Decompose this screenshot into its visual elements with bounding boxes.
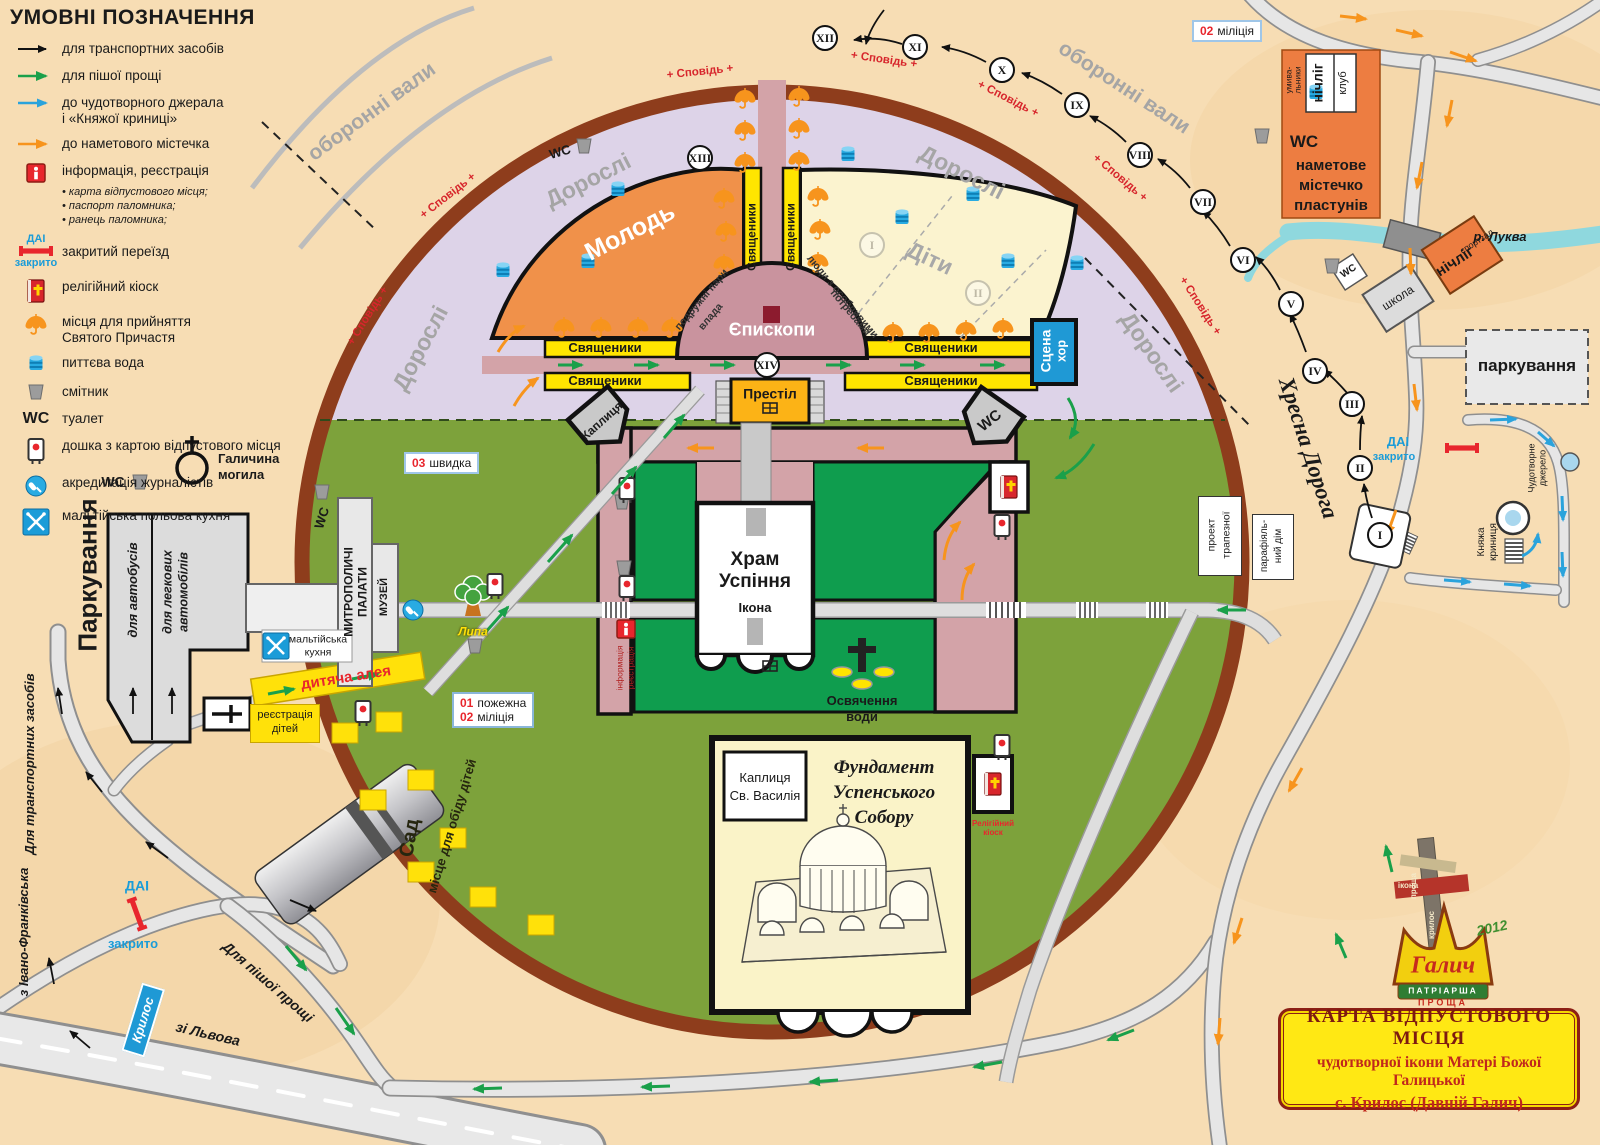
religious-kiosk-icon	[985, 773, 1001, 795]
maltese-kitchen-label: мальтійська	[289, 634, 347, 645]
legend-item-label: питтєва вода	[62, 354, 144, 371]
info-registration-label: інформація	[616, 646, 625, 691]
wc-label: WC	[101, 475, 124, 490]
station-12: XII	[812, 25, 838, 51]
dai-closed-icon: ДАІзакрито	[10, 234, 62, 269]
legend-subitem: • ранець паломника;	[62, 214, 310, 228]
fire-police-box: 01пожежна 02міліція	[452, 692, 534, 728]
legend-subitem: • карта відпустового місця;	[62, 186, 310, 200]
wc-label: WC	[1290, 133, 1318, 151]
parish-house-label: ний дім	[1274, 529, 1285, 563]
miraculous-spring-icon	[1561, 453, 1579, 471]
museum-label: МУЗЕЙ	[379, 578, 391, 616]
station-11: XI	[902, 34, 928, 60]
water-blessing-label: Освячення	[827, 694, 898, 708]
priests-strip: Священики	[568, 374, 641, 388]
religious-kiosk-icon	[10, 278, 62, 304]
dai-label: ДАІ	[125, 879, 149, 894]
parking-right-label: паркування	[1478, 357, 1576, 375]
zone-bishops: Єпископи	[729, 321, 815, 340]
map-title-plaque: КАРТА ВІДПУСТОВОГО МІСЦЯ чудотворної іко…	[1278, 1008, 1580, 1110]
stage-label: Сцена	[1039, 330, 1054, 373]
priests-strip: Священики	[904, 374, 977, 388]
refectory-label: проект	[1206, 519, 1217, 552]
palace-label: ПАЛАТИ	[357, 567, 370, 617]
legend-item-label: до чудотворного джерала	[62, 95, 223, 110]
press-icon	[403, 600, 423, 620]
station-10: X	[989, 57, 1015, 83]
children-registration-box: реєстраціядітей	[250, 704, 320, 743]
transport-road-label: Для транспортних засобів	[23, 673, 37, 854]
ivano-frankivsk-label: з Івано-Франківська	[17, 868, 31, 997]
linden-label: Липа	[458, 626, 488, 639]
station-2-faded: II	[965, 280, 991, 306]
legend-item-label: акредитація журналістів	[62, 474, 213, 491]
legend-item-label: закритий переїзд	[62, 234, 169, 260]
blue-arrow-icon	[10, 94, 62, 112]
legend-item-label: і «Княжої криниці»	[62, 111, 177, 126]
dai-label: ДАІ	[1387, 435, 1409, 449]
legend-item-label: релігійний кіоск	[62, 278, 158, 295]
trash-icon	[10, 383, 62, 401]
maltese-kitchen-label: кухня	[305, 647, 332, 658]
station-8: VIII	[1127, 142, 1153, 168]
palace-label: МИТРОПОЛИЧІ	[343, 547, 356, 637]
logo-halych: Галич	[1411, 953, 1475, 978]
kiosk-label: кіоск	[983, 829, 1002, 837]
map-board-icon	[10, 437, 62, 465]
icon-label: Ікона	[739, 601, 772, 615]
logo-cross-word: ікона	[1398, 882, 1418, 890]
spring-label: джерело	[1538, 450, 1547, 486]
priests-strip: Священики	[568, 341, 641, 355]
map-title: КАРТА ВІДПУСТОВОГО МІСЦЯ	[1281, 1006, 1577, 1050]
station-4: IV	[1302, 358, 1328, 384]
foundation-label: Успенського	[833, 783, 935, 803]
orange-arrow-icon	[10, 135, 62, 153]
dai-closed-label: закрито	[1373, 452, 1415, 464]
priests-strip: Священики	[746, 203, 759, 271]
parking-label: Паркування	[74, 498, 101, 651]
station-7: VII	[1190, 189, 1216, 215]
station-14: XIV	[754, 352, 780, 378]
church-label: Успіння	[719, 572, 791, 592]
station-1-faded: I	[859, 232, 885, 258]
station-1: I	[1367, 522, 1393, 548]
legend-item-label: інформація, реєстрація	[62, 162, 209, 179]
foundation-label: Фундамент	[834, 758, 935, 778]
legend-item-label: туалет	[62, 410, 104, 427]
prestil-label: Престіл	[743, 387, 797, 402]
refectory-label: трапезної	[1221, 511, 1232, 558]
green-arrow-icon	[10, 67, 62, 85]
bus-lane-label: для автобусів	[126, 542, 140, 637]
legend-item-label: для транспортних засобів	[62, 40, 224, 57]
info-icon	[10, 162, 62, 184]
map-subtitle: чудотворної ікони Матері Божої Галицької	[1281, 1054, 1577, 1090]
water-blessing-label: води	[846, 710, 878, 724]
legend-item-label: смітник	[62, 383, 108, 400]
logo-cross-word: крилос	[1428, 911, 1436, 939]
drinking-water-icon	[10, 354, 62, 374]
st-basil-chapel-label: Каплиця	[739, 771, 790, 785]
car-lane-label: для легкових	[161, 550, 174, 634]
princess-well-label: Княжа	[1477, 527, 1488, 556]
stage-label: хор	[1055, 340, 1068, 362]
legend-item-label: Святого Причастя	[62, 330, 175, 345]
princess-well-label: криниця	[1489, 523, 1500, 561]
parish-house-label: парафіяль-	[1260, 520, 1271, 572]
info-registration-icon	[617, 620, 635, 638]
camp-club-label: клуб	[1338, 71, 1350, 94]
camp-label: містечко	[1299, 178, 1363, 194]
station-2: II	[1347, 455, 1373, 481]
police-box: 02міліція	[1192, 20, 1262, 42]
foundation-label: Собору	[855, 808, 914, 828]
priests-strip: Священики	[785, 203, 798, 271]
washstands-label: льники	[1294, 66, 1303, 93]
station-13: XIII	[687, 145, 713, 171]
legend-item-label: місця для прийняття	[62, 314, 191, 329]
priests-strip: Священики	[904, 341, 977, 355]
spring-label: Чудотворне	[1527, 443, 1536, 492]
black-arrow-icon	[10, 40, 62, 58]
station-9: IX	[1064, 92, 1090, 118]
dai-closed-label: закрито	[108, 937, 158, 951]
camp-label: пластунів	[1294, 198, 1368, 214]
halychyna-grave-label: могила	[218, 468, 264, 482]
legend-title: УМОВНІ ПОЗНАЧЕННЯ	[10, 6, 310, 30]
station-6: VI	[1230, 247, 1256, 273]
logo-patriarsha: ПАТРІАРША	[1408, 987, 1478, 996]
legend-item-label: для пішої прощі	[62, 67, 161, 84]
halychyna-grave-label: Галичина	[218, 452, 279, 466]
st-basil-chapel-label: Св. Василія	[730, 789, 801, 803]
camp-lodging-label: нічліг	[1311, 63, 1326, 102]
maltese-kitchen-icon	[10, 507, 62, 537]
religious-kiosk-icon	[1001, 476, 1017, 498]
camp-label: наметове	[1296, 158, 1366, 174]
map-canvas: УМОВНІ ПОЗНАЧЕННЯ для транспортних засоб…	[0, 0, 1600, 1145]
press-icon	[10, 474, 62, 498]
info-registration-label: реєстрація	[627, 647, 636, 690]
maltese-kitchen-icon	[263, 633, 289, 659]
legend-item-label: до наметового містечка	[62, 135, 209, 152]
station-5: V	[1278, 291, 1304, 317]
map-location: с. Крилос (Давній Галич)	[1335, 1093, 1523, 1113]
church-label: Храм	[731, 550, 780, 570]
legend-subitem: • паспорт паломника;	[62, 200, 310, 214]
communion-umbrella-icon	[10, 313, 62, 337]
station-3: III	[1339, 391, 1365, 417]
car-lane-label: автомобілів	[177, 552, 190, 632]
steps-icon	[1505, 539, 1523, 563]
wc-label: WC	[10, 410, 62, 428]
ambulance-box: 03швидка	[404, 452, 479, 474]
